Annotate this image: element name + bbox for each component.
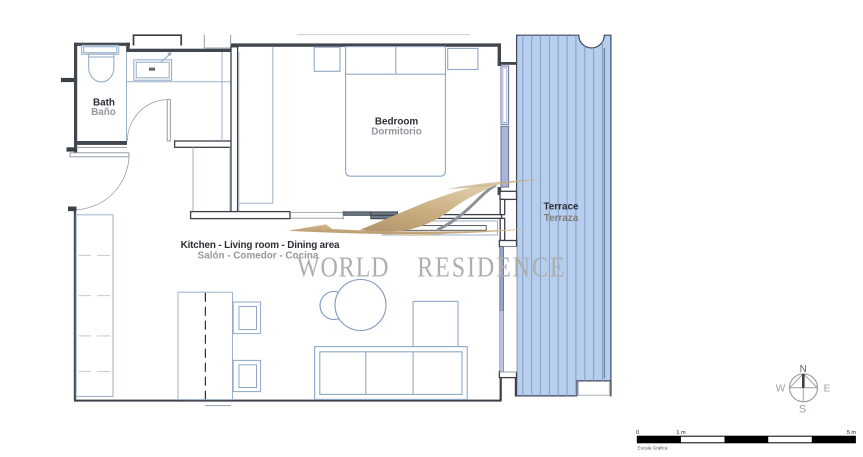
svg-text:1 m: 1 m	[676, 430, 686, 436]
svg-text:Terraza: Terraza	[544, 213, 579, 224]
svg-text:Terrace: Terrace	[544, 201, 579, 212]
svg-text:N: N	[800, 364, 807, 375]
svg-text:E: E	[824, 384, 831, 395]
svg-text:Dormitorio: Dormitorio	[371, 127, 421, 138]
svg-text:0: 0	[636, 430, 639, 436]
svg-text:Escala Gráfica: Escala Gráfica	[638, 446, 668, 451]
svg-text:WORLD: WORLD	[297, 252, 389, 283]
svg-text:W: W	[776, 384, 786, 395]
svg-text:S: S	[799, 404, 806, 416]
svg-text:5 m: 5 m	[847, 430, 857, 436]
svg-text:RESIDENCE: RESIDENCE	[417, 252, 566, 283]
svg-text:Kitchen - Living room - Dining: Kitchen - Living room - Dining area	[181, 240, 340, 251]
svg-text:Baño: Baño	[91, 107, 116, 118]
